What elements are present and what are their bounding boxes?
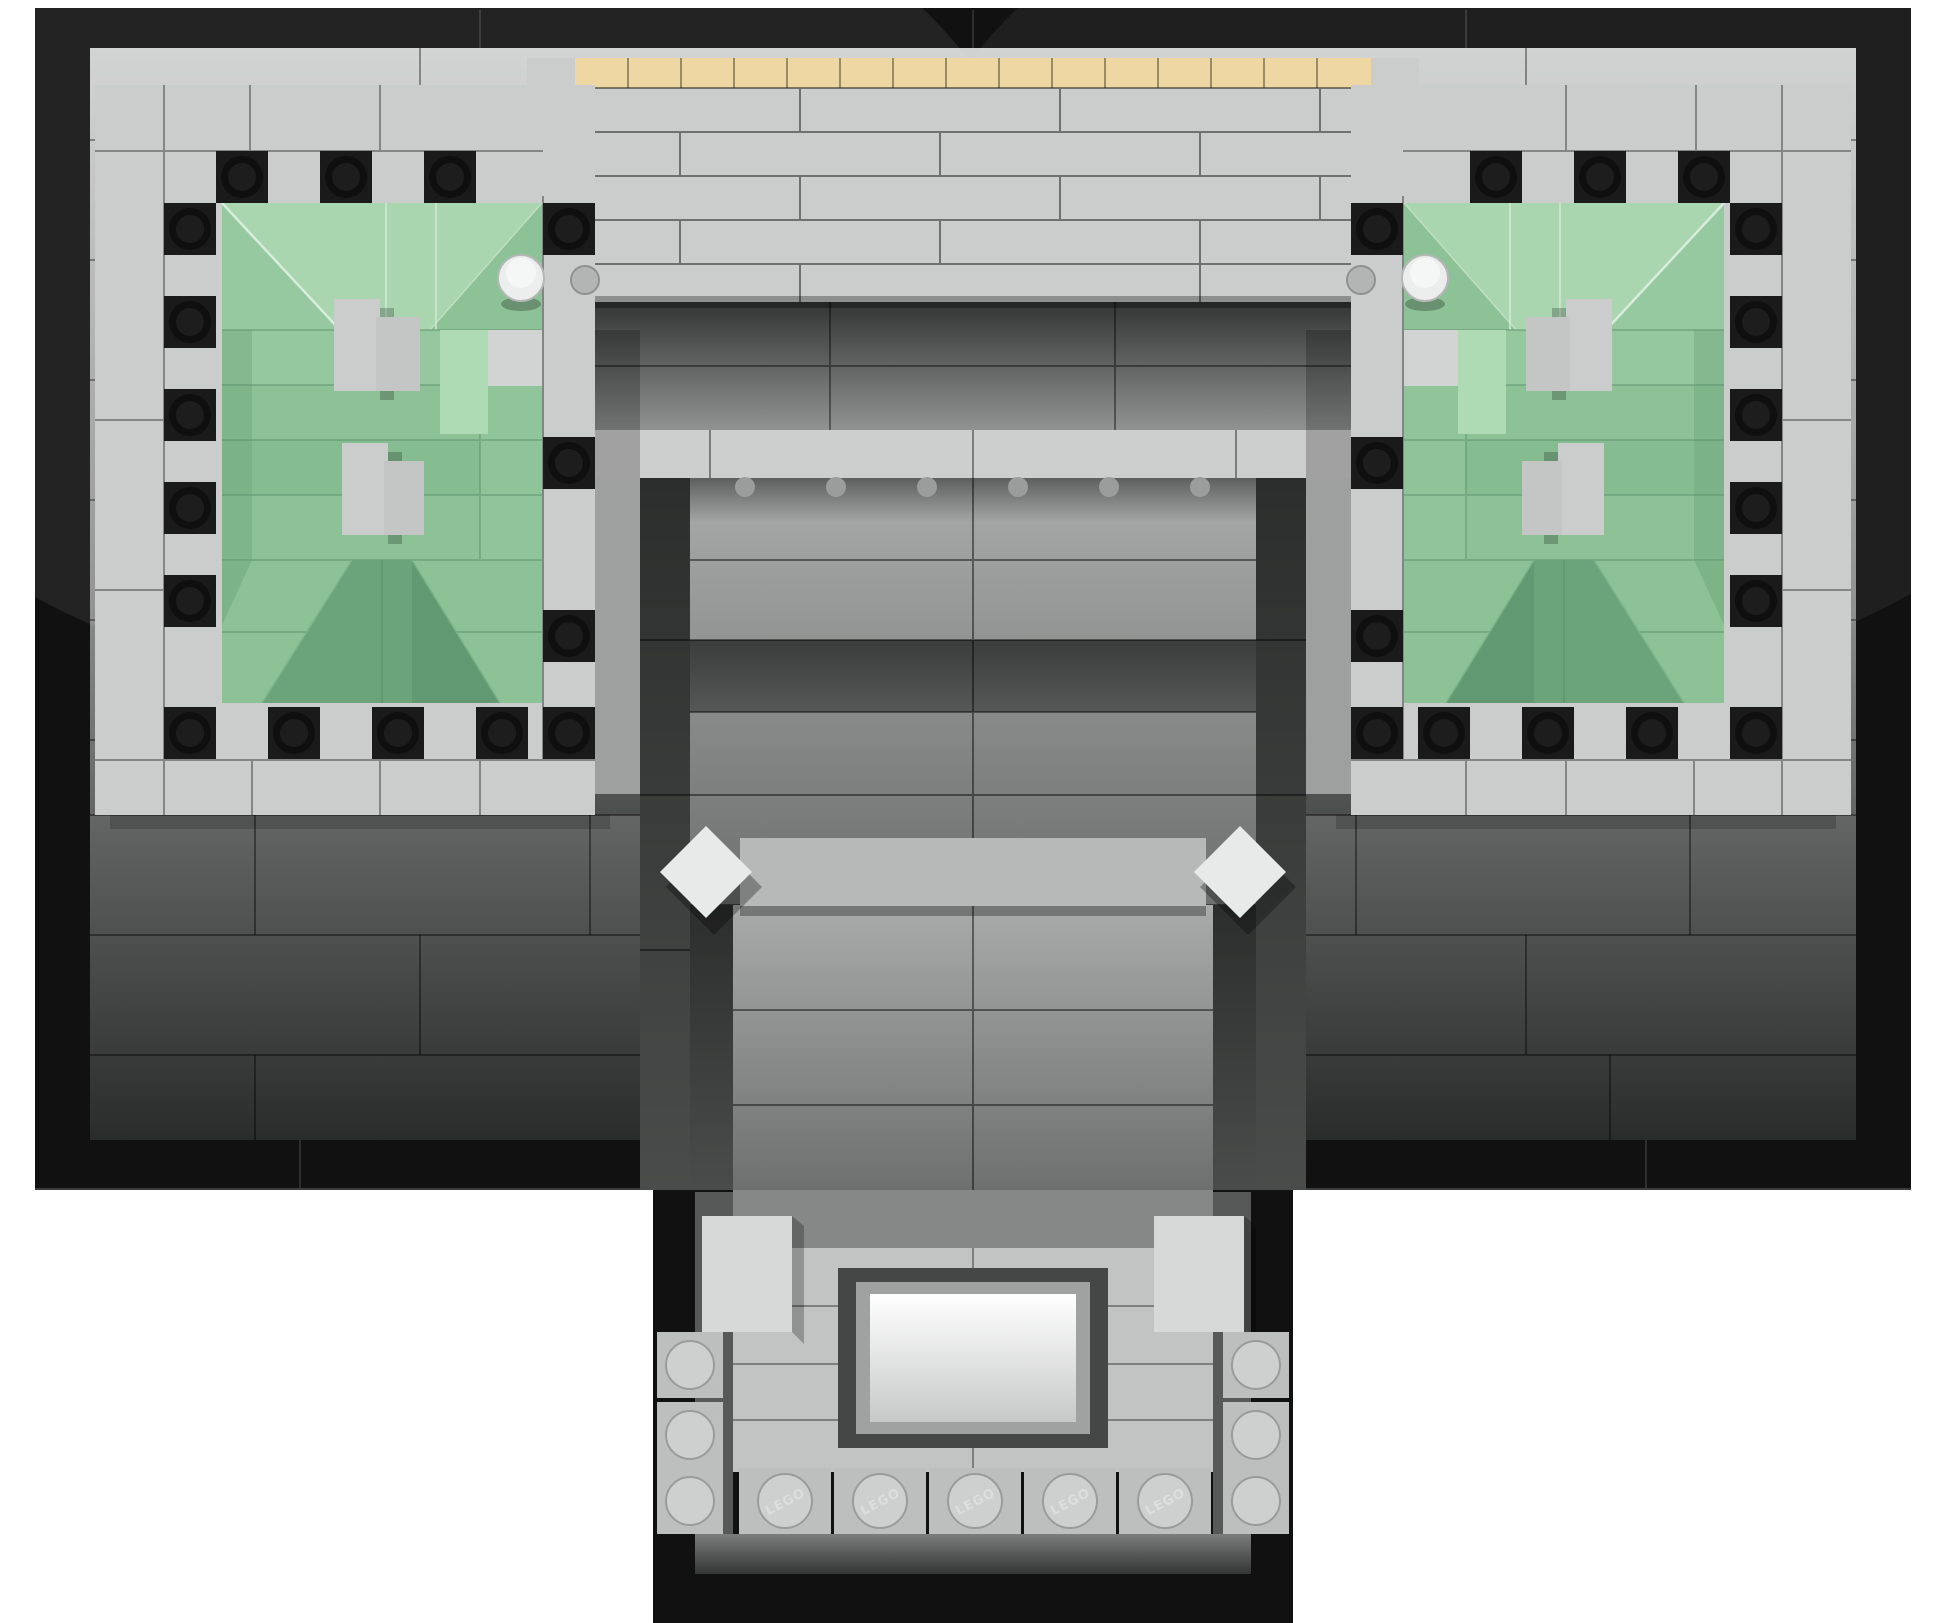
gray-stud-tile: LEGO xyxy=(1024,1468,1116,1534)
gray-stud-tile xyxy=(1223,1332,1289,1398)
pillar-shadow xyxy=(1244,1216,1256,1344)
tan-tile-row xyxy=(575,58,1371,88)
white-cylinder-right xyxy=(1402,255,1448,311)
stud xyxy=(666,1477,714,1525)
ridge-stud-bump xyxy=(917,477,937,497)
stud xyxy=(1232,1477,1280,1525)
ridge-stud-bump xyxy=(826,477,846,497)
transept-bar xyxy=(740,838,1206,906)
nave-east-dark-strip xyxy=(1256,478,1306,1190)
gray-stud-tile xyxy=(657,1402,723,1468)
ridge-stud-bump xyxy=(735,477,755,497)
gray-stud-tile xyxy=(657,1468,723,1534)
lower-east-dark xyxy=(1213,905,1256,1190)
gray-stud-tile xyxy=(1223,1402,1289,1468)
right-pavilion xyxy=(1336,85,1851,829)
lower-west-dark xyxy=(690,905,733,1190)
porch-pillar-left xyxy=(702,1216,804,1344)
ridge-stud-bump xyxy=(1008,477,1028,497)
ridge-stud-bump xyxy=(1099,477,1119,497)
white-cylinder-left xyxy=(498,255,544,311)
central-nave xyxy=(595,477,1351,1190)
porch-pillar-right xyxy=(1154,1216,1256,1344)
east-courtyard-shade xyxy=(1306,330,1351,815)
pillar-shadow xyxy=(792,1216,804,1344)
gray-stud-tile: LEGO xyxy=(739,1468,831,1534)
portico-upper-silver xyxy=(733,1190,1213,1248)
chamber-floor xyxy=(870,1294,1076,1422)
pillar-top xyxy=(1154,1216,1244,1332)
lego-model-canvas: LEGO LEGO LEGO LEGO LEGO xyxy=(0,0,1946,1623)
gray-stud-tile: LEGO xyxy=(834,1468,926,1534)
portico: LEGO LEGO LEGO LEGO LEGO xyxy=(657,1190,1289,1574)
cylinder-top xyxy=(506,258,536,288)
stud xyxy=(666,1411,714,1459)
ridge-stud-bump xyxy=(1190,477,1210,497)
cylinder-top xyxy=(1410,258,1440,288)
gray-stud-tile xyxy=(657,1332,723,1398)
nave-west-dark-strip xyxy=(640,478,690,1190)
stud xyxy=(666,1341,714,1389)
small-cylinder-right xyxy=(1347,266,1375,294)
gray-stud-tile: LEGO xyxy=(929,1468,1021,1534)
left-pavilion xyxy=(95,85,610,829)
back-wing-body xyxy=(527,58,1419,302)
stud xyxy=(1232,1341,1280,1389)
transept-bar-shadow xyxy=(740,906,1206,916)
memorial-chamber xyxy=(838,1268,1108,1448)
small-cylinder-left xyxy=(571,266,599,294)
portico-step-strip xyxy=(695,1534,1251,1574)
gray-stud-tile: LEGO xyxy=(1119,1468,1211,1534)
gray-stud-tile xyxy=(1223,1468,1289,1534)
wing-cast-shadow xyxy=(545,296,1401,308)
stud xyxy=(1232,1411,1280,1459)
west-courtyard-shade xyxy=(595,330,640,815)
pillar-top xyxy=(702,1216,792,1332)
lego-model-photo: LEGO LEGO LEGO LEGO LEGO xyxy=(0,0,1946,1623)
